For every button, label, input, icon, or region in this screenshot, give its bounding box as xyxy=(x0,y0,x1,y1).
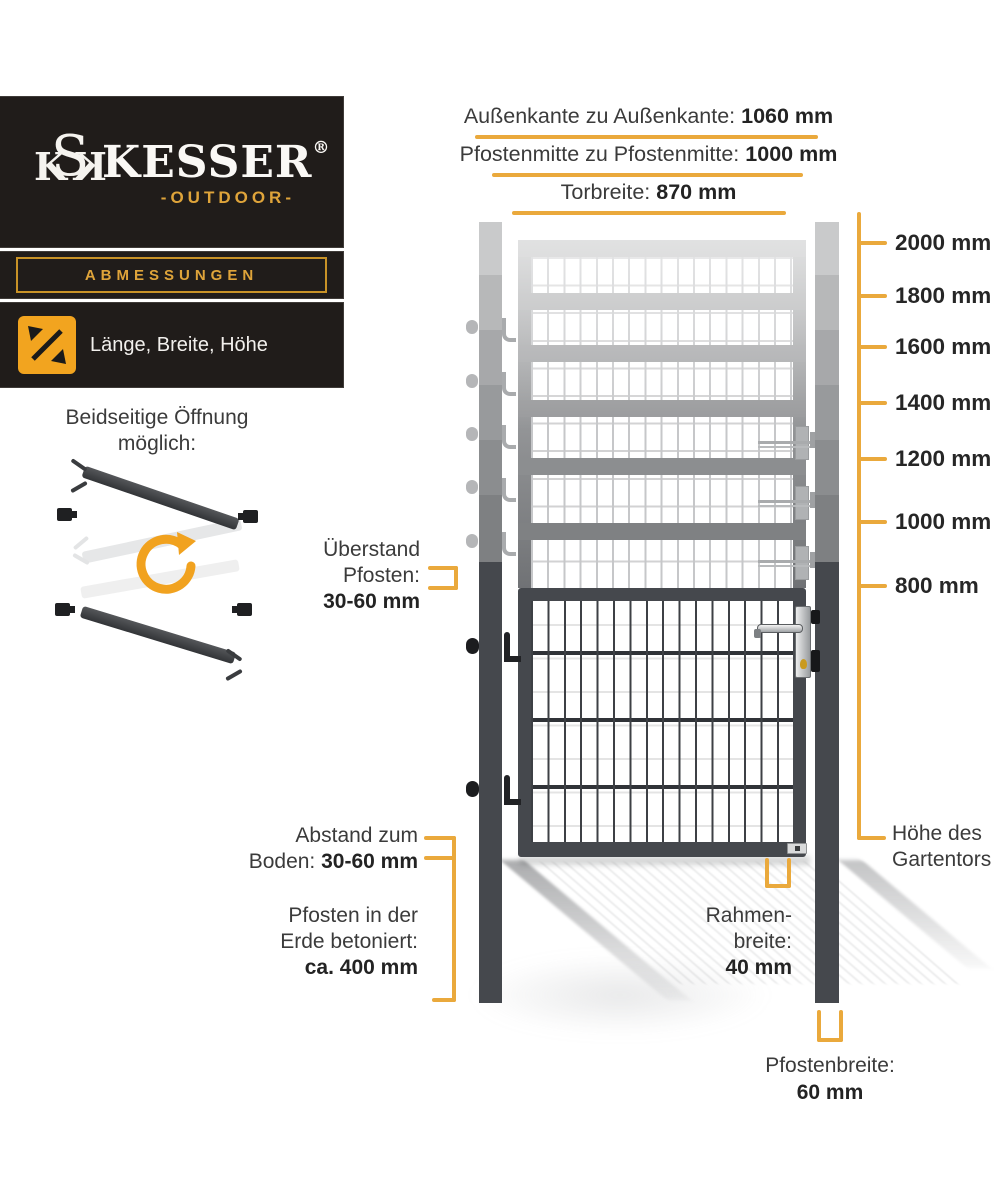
bracket-erde-line xyxy=(452,836,456,1002)
height-scale-label: 1000 mm xyxy=(895,509,991,535)
annotation-hoehe: Höhe des Gartentors xyxy=(892,821,998,873)
ghost-hinge-hook xyxy=(502,532,516,556)
dimension-line xyxy=(512,211,786,215)
dimension-label: Torbreite: xyxy=(561,180,651,204)
diagonal-arrows-icon xyxy=(18,316,76,374)
annotation-text: Höhe des xyxy=(892,821,998,847)
brand-name-text: KESSER xyxy=(102,137,312,188)
brand-name: KESSER® xyxy=(102,137,330,188)
height-scale-label: 1800 mm xyxy=(895,283,991,309)
annotation-text: Erde betoniert: xyxy=(198,929,418,955)
dimension-outer-edge: Außenkante zu Außenkante: 1060 mm xyxy=(440,104,857,129)
gate-handle xyxy=(757,624,803,633)
hinge-pin xyxy=(466,781,479,797)
ghost-hinge-hook xyxy=(502,372,516,396)
annotation-text: Pfostenbreite: xyxy=(749,1052,911,1079)
infographic-canvas: K K S KESSER® -OUTDOOR- ABMESSUNGEN Läng… xyxy=(0,0,1000,1200)
opening-note: Beidseitige Öffnung möglich: xyxy=(37,405,277,457)
ghost-hinge xyxy=(466,320,478,334)
ghost-gate-top-2000 xyxy=(518,240,806,257)
annotation-text: Boden: 30-60 mm xyxy=(218,849,418,875)
ghost-hinge-hook xyxy=(502,478,516,502)
bracket-erde-foot xyxy=(432,998,456,1002)
hinge-arm xyxy=(504,656,521,662)
gate-bar-top xyxy=(81,466,239,530)
annotation-text: Abstand zum xyxy=(218,823,418,849)
ghost-gate-top-1800 xyxy=(518,293,806,310)
height-scale-line xyxy=(857,212,861,840)
dimension-value: 1000 mm xyxy=(745,142,837,166)
annotation-pfostenbreite: Pfostenbreite: 60 mm xyxy=(749,1052,911,1106)
bracket-pfostenbreite xyxy=(839,1010,843,1042)
annotation-text: breite: xyxy=(662,929,792,955)
ghost-lock-plate xyxy=(795,486,809,520)
annotation-rahmenbreite: Rahmen- breite: 40 mm xyxy=(662,903,792,981)
annotation-text: Überstand xyxy=(240,537,420,563)
annotation-value: 60 mm xyxy=(797,1081,864,1104)
monogram-s: S xyxy=(51,124,89,189)
gate-hook xyxy=(70,458,87,472)
ghost-lock-plate xyxy=(795,546,809,580)
hinge-pin xyxy=(466,638,479,654)
height-scale-tick xyxy=(857,294,887,298)
height-scale-tick xyxy=(857,457,887,461)
ghost-hinge xyxy=(466,374,478,388)
lock-keeper xyxy=(811,650,820,672)
annotation-value: 30-60 mm xyxy=(323,590,420,613)
opening-note-line2: möglich: xyxy=(37,431,277,457)
height-scale-tick xyxy=(857,584,887,588)
height-scale-label: 800 mm xyxy=(895,573,979,599)
annotation-text: Gartentors xyxy=(892,847,998,873)
dimension-value: 1060 mm xyxy=(741,104,833,128)
dimension-line xyxy=(492,173,803,177)
dimension-label: Außenkante zu Außenkante: xyxy=(464,104,735,128)
bracket-rahmen xyxy=(787,858,791,888)
height-scale-label: 1200 mm xyxy=(895,446,991,472)
gate-handle-end xyxy=(754,629,761,638)
height-scale-label: 2000 mm xyxy=(895,230,991,256)
dimension-line xyxy=(475,135,818,139)
height-scale-label: 1600 mm xyxy=(895,334,991,360)
annotation-text: Rahmen- xyxy=(662,903,792,929)
hinge-pin xyxy=(57,508,72,521)
annotation-ueberstand: Überstand Pfosten: 30-60 mm xyxy=(240,537,420,615)
ghost-gate-top-1600 xyxy=(518,345,806,362)
ghost-hinge-hook xyxy=(502,425,516,449)
abmessungen-label: ABMESSUNGEN xyxy=(85,267,258,284)
bracket-ueberstand xyxy=(428,586,458,590)
annotation-value: 40 mm xyxy=(725,956,792,979)
ghost-gate-top-1200 xyxy=(518,458,806,475)
ghost-hinge xyxy=(466,480,478,494)
ghost-handle xyxy=(758,441,810,444)
ghost-hinge xyxy=(466,534,478,548)
ghost-hinge-hook xyxy=(502,318,516,342)
height-scale-foot xyxy=(857,836,886,840)
height-scale-tick xyxy=(857,345,887,349)
ghost-hinge xyxy=(466,427,478,441)
height-scale-label: 1400 mm xyxy=(895,390,991,416)
kesser-monogram-icon: K K S xyxy=(34,128,106,196)
dimension-value: 870 mm xyxy=(656,180,736,204)
ghost-gate-top-1400 xyxy=(518,400,806,417)
abmessungen-badge: ABMESSUNGEN xyxy=(16,257,327,293)
dimension-chip-label: Länge, Breite, Höhe xyxy=(90,303,268,387)
registered-mark: ® xyxy=(312,138,330,158)
gate-bar-bottom xyxy=(80,606,237,664)
dimension-post-center: Pfostenmitte zu Pfostenmitte: 1000 mm xyxy=(440,142,857,167)
annotation-abstand: Abstand zum Boden: 30-60 mm xyxy=(218,823,418,875)
height-scale-tick xyxy=(857,401,887,405)
ghost-hook xyxy=(73,536,89,551)
annotation-text: Pfosten: xyxy=(240,563,420,589)
height-scale-tick xyxy=(857,520,887,524)
annotation-pfosten-erde: Pfosten in der Erde betoniert: ca. 400 m… xyxy=(198,903,418,981)
kesser-gate-badge xyxy=(787,843,807,854)
gate-hook xyxy=(70,481,88,493)
opening-note-line1: Beidseitige Öffnung xyxy=(37,405,277,431)
brand-tagline: -OUTDOOR- xyxy=(100,188,295,208)
ghost-handle xyxy=(758,500,810,503)
hinge-arm xyxy=(504,799,521,805)
fence-post-left xyxy=(479,222,502,1003)
rotation-arrow-icon xyxy=(127,532,199,604)
annotation-value: ca. 400 mm xyxy=(305,956,418,979)
ghost-handle xyxy=(758,560,810,563)
annotation-text: Pfosten in der xyxy=(198,903,418,929)
gate-hook xyxy=(225,669,243,681)
keyhole xyxy=(800,659,807,669)
hinge-pin xyxy=(55,603,70,616)
lock-keeper xyxy=(811,610,820,624)
hinge-pin xyxy=(243,510,258,523)
dimension-label: Pfostenmitte zu Pfostenmitte: xyxy=(460,142,740,166)
height-scale-tick xyxy=(857,241,887,245)
dimension-gate-width: Torbreite: 870 mm xyxy=(440,180,857,205)
ghost-gate-top-1000 xyxy=(518,523,806,540)
